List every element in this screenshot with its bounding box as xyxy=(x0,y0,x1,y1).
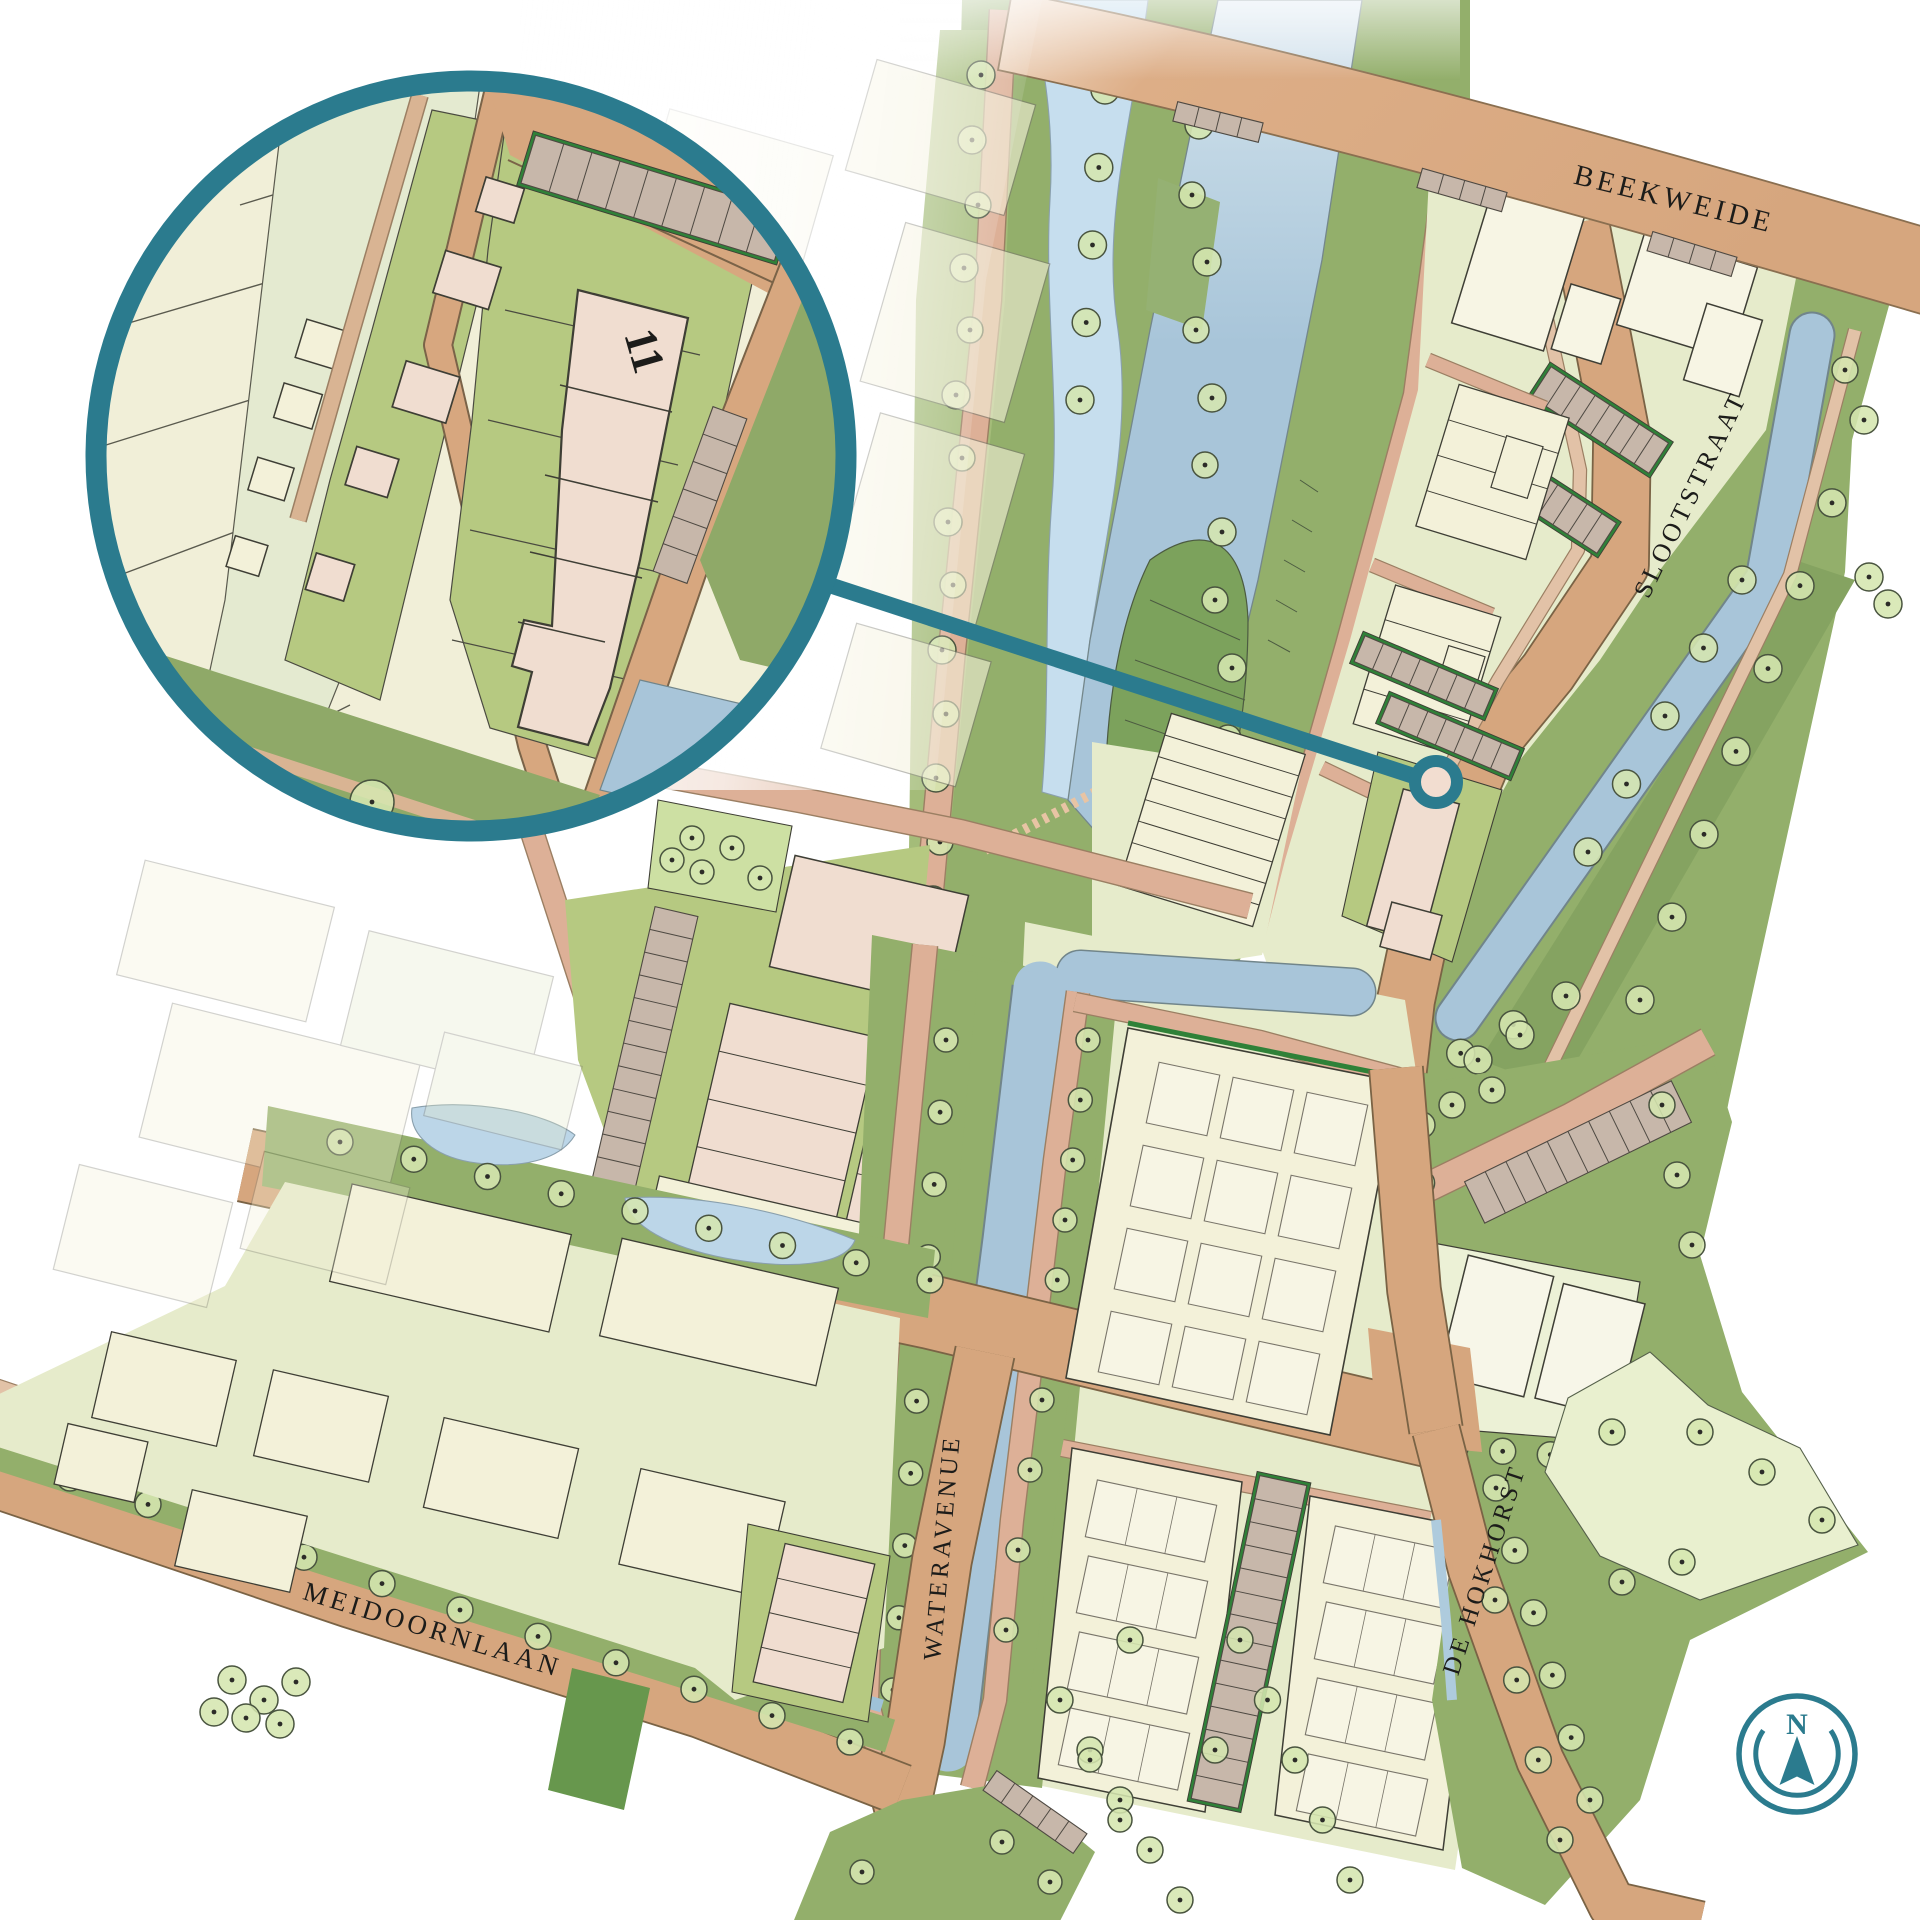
svg-text:N: N xyxy=(1786,1708,1808,1741)
